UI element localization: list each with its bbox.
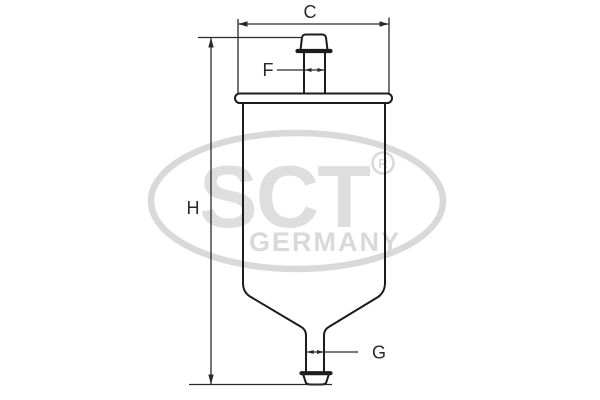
- arrow-left-icon: [238, 21, 248, 26]
- dimension-c: C: [238, 2, 389, 94]
- fuel-filter-technical-drawing: SCT R GERMANY: [0, 0, 600, 400]
- arrow-right-icon: [317, 350, 324, 354]
- watermark-country-text: GERMANY: [249, 227, 401, 257]
- inlet-tube: [304, 52, 325, 94]
- outlet-tip: [304, 376, 329, 385]
- drawing-canvas: SCT R GERMANY: [0, 0, 600, 400]
- arrow-left-icon: [305, 68, 312, 72]
- dimension-f: F: [263, 60, 325, 80]
- arrow-left-icon: [307, 350, 314, 354]
- dimension-label-g: G: [372, 343, 386, 363]
- registered-trademark-icon: R: [373, 153, 394, 174]
- registered-letter: R: [378, 156, 388, 171]
- arrow-right-icon: [380, 21, 390, 26]
- filter-flange: [235, 94, 392, 104]
- arrow-right-icon: [318, 68, 325, 72]
- dimension-g: G: [306, 343, 386, 363]
- dimension-label-c: C: [304, 2, 317, 22]
- dimension-label-f: F: [263, 60, 274, 80]
- arrow-down-icon: [208, 375, 213, 385]
- arrow-up-icon: [208, 38, 213, 48]
- dimension-label-h: H: [187, 198, 200, 218]
- inlet-cap: [301, 35, 328, 51]
